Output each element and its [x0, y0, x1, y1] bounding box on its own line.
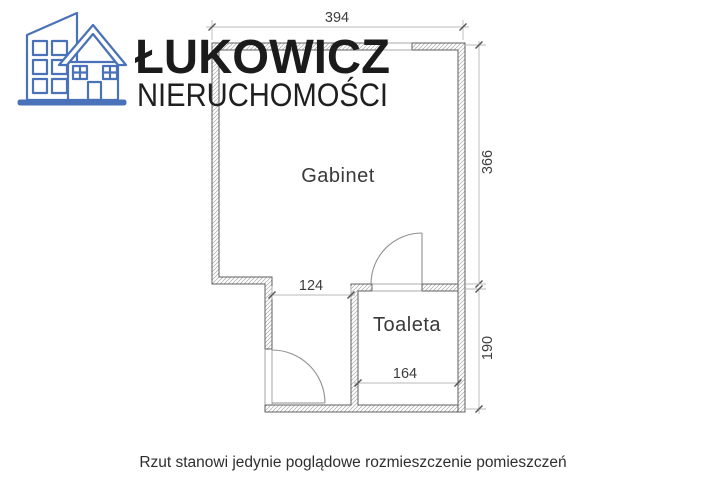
dimension-right-lower: 190 [465, 284, 496, 414]
brand-subtitle: NIERUCHOMOŚCI [137, 77, 388, 113]
door-arc [272, 350, 325, 403]
dimension-corridor: 124 [268, 278, 355, 299]
dimension-toaleta-width: 164 [354, 366, 462, 387]
disclaimer-text: Rzut stanowi jedynie poglądowe rozmieszc… [139, 454, 566, 471]
dimension-right-upper: 366 [465, 41, 496, 288]
wall-toaleta-top-right-stub [422, 284, 458, 291]
dim-label-164: 164 [393, 366, 417, 382]
wall-bottom-and-toaleta-left [265, 284, 458, 412]
floor-plan-canvas: 394 366 190 124 [0, 0, 707, 500]
room-label-gabinet: Gabinet [301, 165, 375, 187]
dim-label-366: 366 [480, 150, 496, 174]
toaleta-door-swing [371, 233, 422, 284]
dim-label-190: 190 [480, 336, 496, 360]
corridor-door-opening [265, 349, 272, 405]
room-label-toaleta: Toaleta [373, 314, 441, 336]
wall-top-right-and-right [412, 43, 465, 412]
buildings-icon [18, 13, 126, 105]
dim-label-394: 394 [325, 10, 349, 26]
corridor-door-swing [272, 350, 325, 403]
door-arc [371, 233, 422, 284]
toaleta-door-opening [372, 284, 422, 291]
floor-plan-page: 394 366 190 124 [0, 0, 707, 500]
dim-label-124: 124 [299, 278, 323, 294]
logo: ŁUKOWICZ NIERUCHOMOŚCI [18, 13, 390, 113]
